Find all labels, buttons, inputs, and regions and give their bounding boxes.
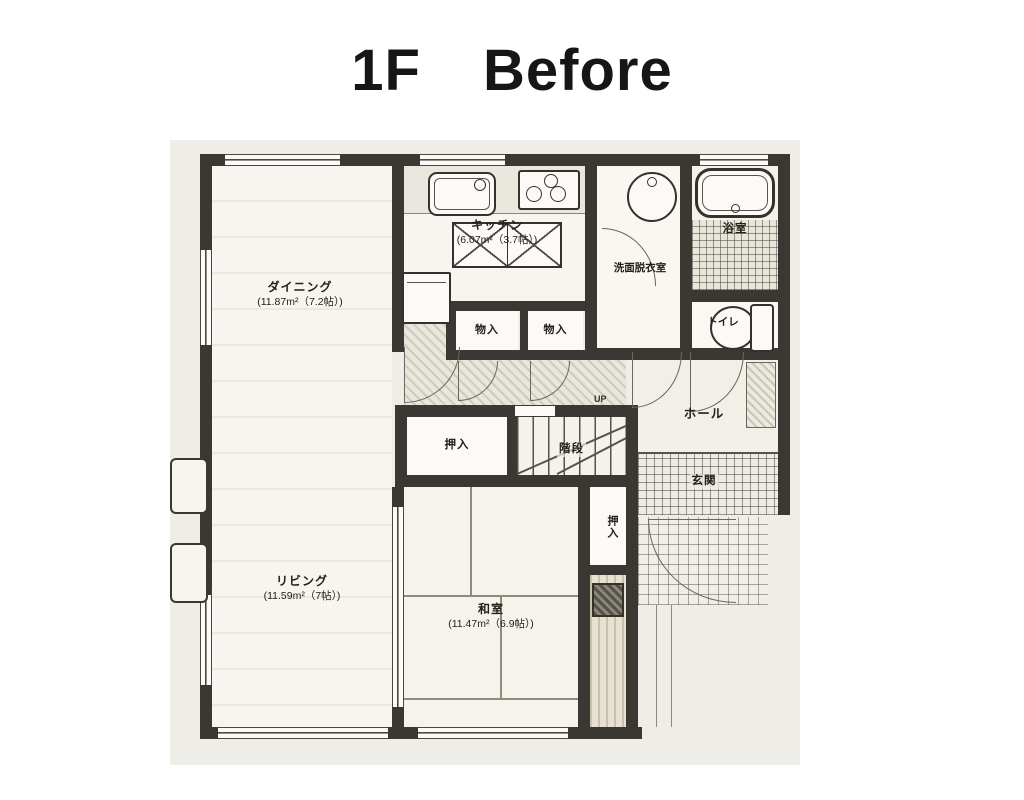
storage-left-label: 物入 xyxy=(456,323,518,337)
washroom-sink xyxy=(627,172,677,222)
window-dining-top xyxy=(225,154,340,166)
window-living-left xyxy=(200,590,212,685)
ac-outdoor-unit-1 xyxy=(170,458,208,514)
hall-label: ホール xyxy=(630,406,778,422)
stairs-name: 階段 xyxy=(557,442,586,457)
japanese-room-label: 和室 (11.47m²（6.9帖）) xyxy=(404,602,578,631)
wall-bath-toilet xyxy=(692,290,778,302)
wall-kitchen-washroom xyxy=(585,166,597,350)
approach-step xyxy=(656,605,672,727)
phase-label: Before xyxy=(483,37,673,104)
bathtub xyxy=(695,168,775,218)
tatami-line xyxy=(470,487,472,595)
storage-right-label: 物入 xyxy=(528,323,583,337)
tatami-line xyxy=(404,595,578,597)
washroom-label: 洗面脱衣室 xyxy=(597,262,683,276)
window-kitchen-top xyxy=(420,154,505,166)
kitchen-label: キッチン (6.07m²（3.7帖）) xyxy=(417,218,577,247)
living-label: リビング (11.59m²（7帖）) xyxy=(212,574,392,603)
window-bath-top xyxy=(700,154,768,166)
stairs-label: 階段 xyxy=(517,438,626,459)
wall-closet-block-bottom xyxy=(395,475,638,487)
wall-stairs-right xyxy=(626,405,638,739)
storage-left-name: 物入 xyxy=(456,323,518,337)
living-name: リビング xyxy=(212,574,392,590)
washroom-name: 洗面脱衣室 xyxy=(597,262,683,276)
stairs-up-label: UP xyxy=(594,394,607,404)
dining-area: (11.87m²（7.2帖）) xyxy=(210,296,390,310)
stove xyxy=(518,170,580,210)
wall-living-japanese-stub-top xyxy=(392,487,404,507)
bathroom-name: 浴室 xyxy=(692,222,778,237)
stove-burner xyxy=(550,186,566,202)
wall-outer-right xyxy=(778,154,790,515)
kitchen-area: (6.07m²（3.7帖）) xyxy=(417,234,577,248)
toilet-name: トイレ xyxy=(686,316,760,330)
dining-name: ダイニング xyxy=(210,280,390,296)
wall-living-japanese-stub-bottom xyxy=(392,707,404,739)
wall-dining-kitchen xyxy=(392,166,404,352)
bathroom-label: 浴室 xyxy=(692,222,778,237)
living-dining-floor xyxy=(212,166,392,727)
stairs-opening xyxy=(515,406,555,416)
wall-closet-stairs-divider xyxy=(507,417,517,475)
toilet-label: トイレ xyxy=(686,316,760,330)
entrance-name: 玄関 xyxy=(690,474,719,489)
stove-burner xyxy=(526,186,542,202)
closet-japanese-name: 押入 xyxy=(605,495,619,559)
cabinet-dark xyxy=(592,583,624,617)
living-area: (11.59m²（7帖）) xyxy=(212,590,392,604)
floor-label: 1F xyxy=(351,37,421,104)
wall-closet-block-left xyxy=(395,405,407,487)
hall-name: ホール xyxy=(630,406,778,422)
entrance-label: 玄関 xyxy=(630,470,778,491)
closet-hall-name: 押入 xyxy=(407,438,507,453)
wall-storage-bottom xyxy=(446,350,597,360)
floor-plan: ダイニング (11.87m²（7.2帖）) キッチン (6.07m²（3.7帖）… xyxy=(170,140,800,765)
wall-closet-japanese-bottom xyxy=(590,565,626,575)
wall-japanese-right xyxy=(578,482,590,727)
refrigerator xyxy=(402,272,451,324)
storage-right-name: 物入 xyxy=(528,323,583,337)
wall-storage-divider xyxy=(520,305,528,355)
ac-outdoor-unit-2 xyxy=(170,543,208,603)
window-living-bottom xyxy=(218,727,388,739)
closet-japanese-label: 押入 xyxy=(597,495,619,559)
kitchen-name: キッチン xyxy=(417,218,577,234)
page-title: 1F Before xyxy=(0,30,1024,110)
dining-label: ダイニング (11.87m²（7.2帖）) xyxy=(210,280,390,309)
japanese-room-name: 和室 xyxy=(404,602,578,618)
window-japanese-bottom xyxy=(418,727,568,739)
closet-hall-label: 押入 xyxy=(407,438,507,453)
veranda-edge-line xyxy=(404,698,578,700)
sliding-door-living-japanese xyxy=(392,507,404,707)
japanese-room-area: (11.47m²（6.9帖）) xyxy=(404,618,578,632)
kitchen-sink xyxy=(428,172,496,216)
